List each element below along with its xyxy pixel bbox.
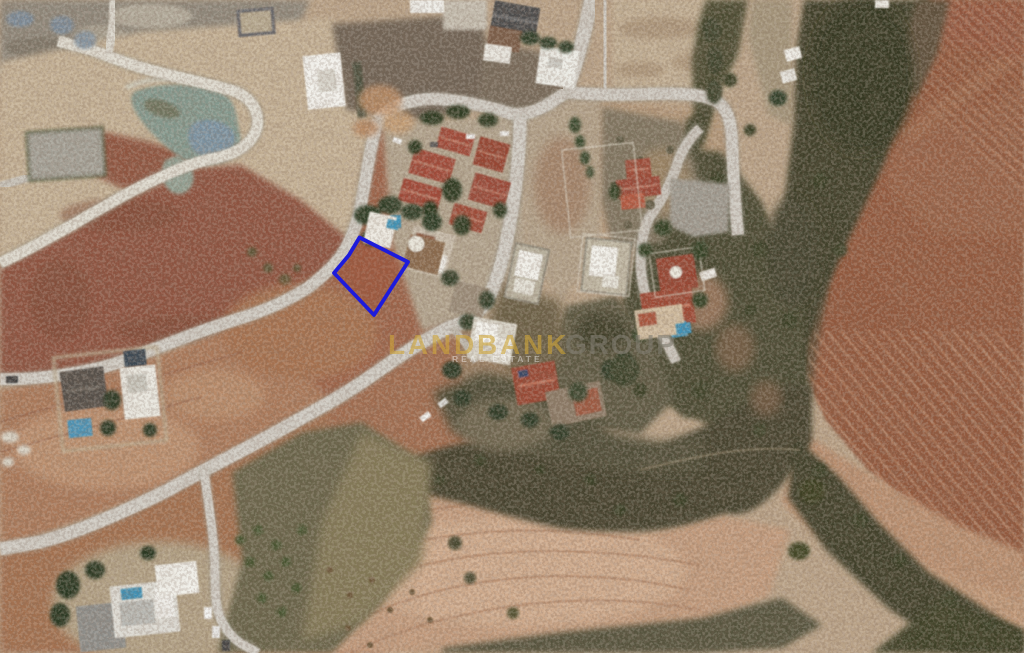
svg-text:REAL ESTATE: REAL ESTATE (452, 354, 543, 364)
svg-text:GROUP: GROUP (565, 329, 677, 360)
